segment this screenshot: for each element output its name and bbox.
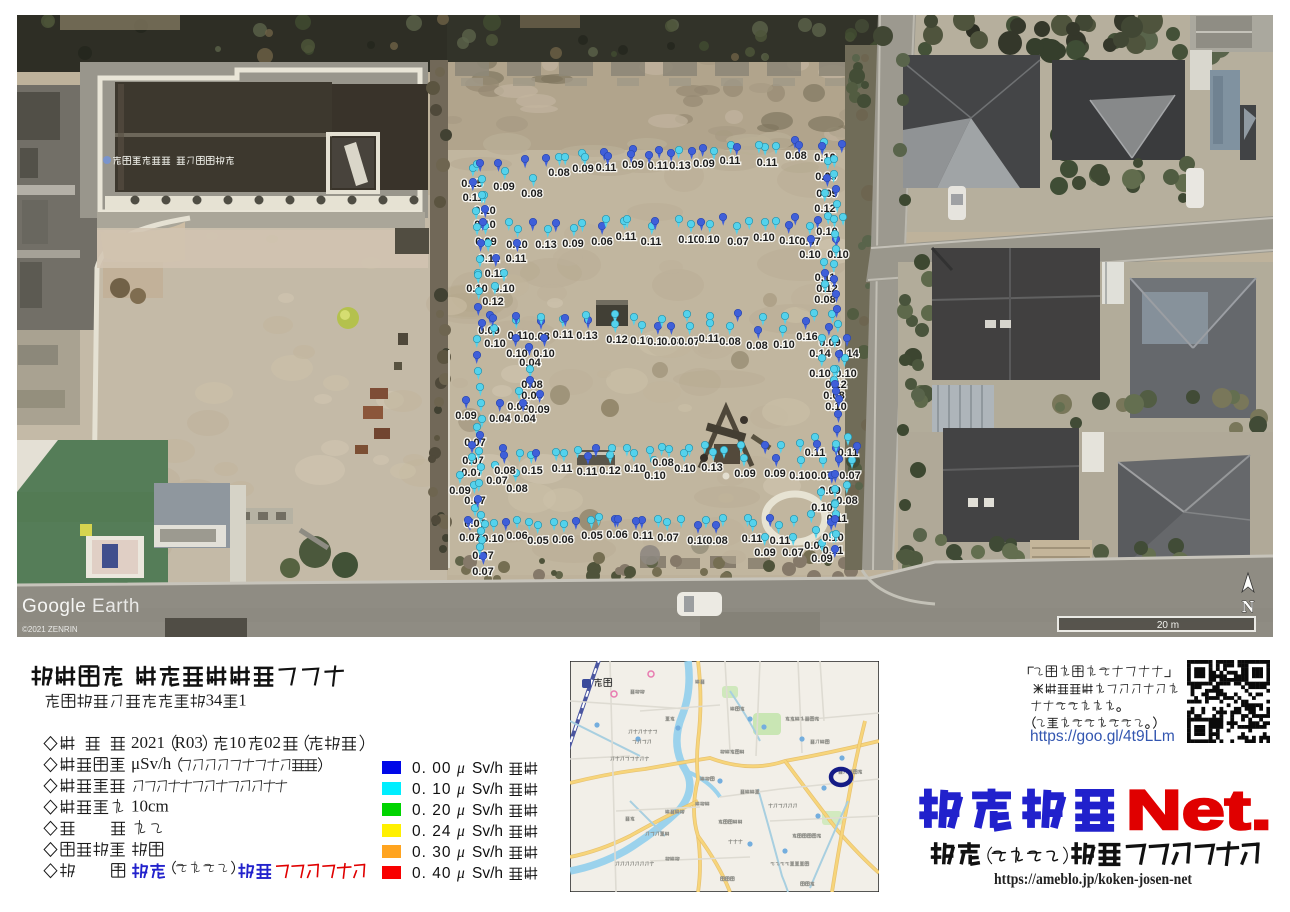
svg-text:0.13: 0.13 (535, 239, 556, 251)
svg-text:0.15: 0.15 (521, 465, 542, 477)
svg-text:0.06: 0.06 (606, 529, 627, 541)
svg-text:μ: μ (456, 844, 465, 861)
svg-text:0.09: 0.09 (562, 238, 583, 250)
svg-text:©2021 ZENRIN: ©2021 ZENRIN (22, 625, 78, 634)
svg-text:0.07: 0.07 (727, 236, 748, 248)
svg-text:0.11: 0.11 (720, 155, 741, 167)
svg-text:0.09: 0.09 (493, 181, 514, 193)
svg-text:0.08: 0.08 (521, 188, 542, 200)
svg-text:0.12: 0.12 (606, 334, 627, 346)
svg-text:0.11: 0.11 (577, 466, 598, 478)
svg-text:Sv/h: Sv/h (472, 865, 503, 882)
svg-text:0.09: 0.09 (622, 159, 643, 171)
svg-text:0.06: 0.06 (506, 530, 527, 542)
svg-text:0.04: 0.04 (514, 413, 536, 425)
svg-text:0.16: 0.16 (796, 331, 817, 343)
svg-text:0. 00: 0. 00 (412, 760, 451, 777)
svg-text:0.11: 0.11 (641, 236, 662, 248)
svg-text:Google Earth: Google Earth (22, 596, 140, 617)
svg-text:0.07: 0.07 (839, 470, 860, 482)
svg-text:0.08: 0.08 (719, 336, 740, 348)
svg-text:0.11: 0.11 (596, 162, 617, 174)
svg-text:0.08: 0.08 (785, 150, 806, 162)
svg-text:0. 24: 0. 24 (412, 823, 451, 840)
svg-text:0.07: 0.07 (459, 532, 480, 544)
svg-text:0.10: 0.10 (773, 339, 794, 351)
svg-text:0.10: 0.10 (674, 463, 695, 475)
svg-text:0.13: 0.13 (701, 462, 722, 474)
svg-text:0. 20: 0. 20 (412, 802, 451, 819)
svg-text:0.08: 0.08 (494, 465, 515, 477)
svg-text:0.11: 0.11 (699, 333, 720, 345)
svg-text:0.11: 0.11 (633, 530, 654, 542)
svg-text:0.11: 0.11 (742, 533, 763, 545)
svg-text:0.13: 0.13 (576, 330, 597, 342)
svg-text:0.08: 0.08 (548, 167, 569, 179)
svg-text:02: 02 (264, 733, 281, 752)
svg-text:0. 30: 0. 30 (412, 844, 451, 861)
svg-text:0.11: 0.11 (506, 253, 527, 265)
svg-text:0.12: 0.12 (482, 296, 503, 308)
svg-text:0.11: 0.11 (616, 231, 637, 243)
svg-text:1: 1 (238, 691, 246, 710)
svg-text:0.09: 0.09 (754, 547, 775, 559)
svg-text:10cm: 10cm (131, 797, 169, 816)
svg-text:0.09: 0.09 (811, 553, 832, 565)
svg-text:20 m: 20 m (1157, 620, 1179, 631)
svg-text:μ: μ (456, 781, 465, 798)
svg-text:Sv/h: Sv/h (472, 781, 503, 798)
svg-text:0.10: 0.10 (779, 235, 800, 247)
svg-text:0.08: 0.08 (746, 340, 767, 352)
svg-text:0.09: 0.09 (455, 410, 476, 422)
svg-text:0.09: 0.09 (764, 468, 785, 480)
svg-text:https://goo.gl/4t9LLm: https://goo.gl/4t9LLm (1030, 728, 1175, 745)
svg-text:R03: R03 (175, 733, 203, 752)
svg-text:μ: μ (456, 823, 465, 840)
svg-text:0.11: 0.11 (770, 535, 791, 547)
svg-text:0.09: 0.09 (693, 158, 714, 170)
svg-text:0.12: 0.12 (599, 465, 620, 477)
svg-text:0. 10: 0. 10 (412, 781, 451, 798)
svg-text:2021: 2021 (131, 733, 165, 752)
svg-text:0.07: 0.07 (678, 336, 699, 348)
svg-text:μ: μ (456, 760, 465, 777)
svg-text:https://ameblo.jp/koken-josen-: https://ameblo.jp/koken-josen-net (994, 871, 1193, 888)
svg-text:0. 40: 0. 40 (412, 865, 451, 882)
svg-text:0.07: 0.07 (472, 566, 493, 578)
svg-text:0.13: 0.13 (669, 160, 690, 172)
svg-text:0.06: 0.06 (591, 236, 612, 248)
svg-text:0.10: 0.10 (678, 234, 699, 246)
svg-text:Sv/h: Sv/h (472, 844, 503, 861)
svg-text:0.08: 0.08 (706, 535, 727, 547)
svg-text:0.05: 0.05 (527, 535, 548, 547)
svg-text:μ: μ (456, 802, 465, 819)
svg-text:0.10: 0.10 (644, 470, 665, 482)
svg-text:0.08: 0.08 (506, 483, 527, 495)
svg-text:0.10: 0.10 (789, 470, 810, 482)
svg-text:0.11: 0.11 (805, 447, 826, 459)
svg-text:0.07: 0.07 (657, 532, 678, 544)
svg-text:N: N (1242, 597, 1255, 616)
svg-text:Sv/h: Sv/h (472, 802, 503, 819)
svg-text:μ: μ (456, 865, 465, 882)
svg-text:0.10: 0.10 (698, 234, 719, 246)
svg-text:0.08: 0.08 (836, 495, 857, 507)
svg-text:0.09: 0.09 (734, 468, 755, 480)
svg-text:0.11: 0.11 (757, 157, 778, 169)
svg-text:34: 34 (206, 691, 223, 710)
svg-text:Net.: Net. (1126, 778, 1272, 841)
svg-text:0.10: 0.10 (484, 338, 505, 350)
svg-text:0.11: 0.11 (552, 463, 573, 475)
svg-text:0.08: 0.08 (652, 457, 673, 469)
svg-text:0.10: 0.10 (624, 463, 645, 475)
svg-text:0.12: 0.12 (814, 203, 835, 215)
svg-text:0.04: 0.04 (489, 413, 511, 425)
svg-text:0.07: 0.07 (782, 547, 803, 559)
svg-text:0.05: 0.05 (581, 530, 602, 542)
svg-text:Sv/h: Sv/h (472, 760, 503, 777)
svg-text:0.10: 0.10 (753, 232, 774, 244)
svg-text:10: 10 (229, 733, 246, 752)
svg-text:0.11: 0.11 (648, 160, 669, 172)
svg-text:μSv/h: μSv/h (131, 754, 172, 773)
svg-text:0.06: 0.06 (552, 534, 573, 546)
svg-text:0.11: 0.11 (553, 329, 574, 341)
svg-text:0.10: 0.10 (799, 249, 820, 261)
svg-text:0.09: 0.09 (572, 163, 593, 175)
svg-text:Sv/h: Sv/h (472, 823, 503, 840)
